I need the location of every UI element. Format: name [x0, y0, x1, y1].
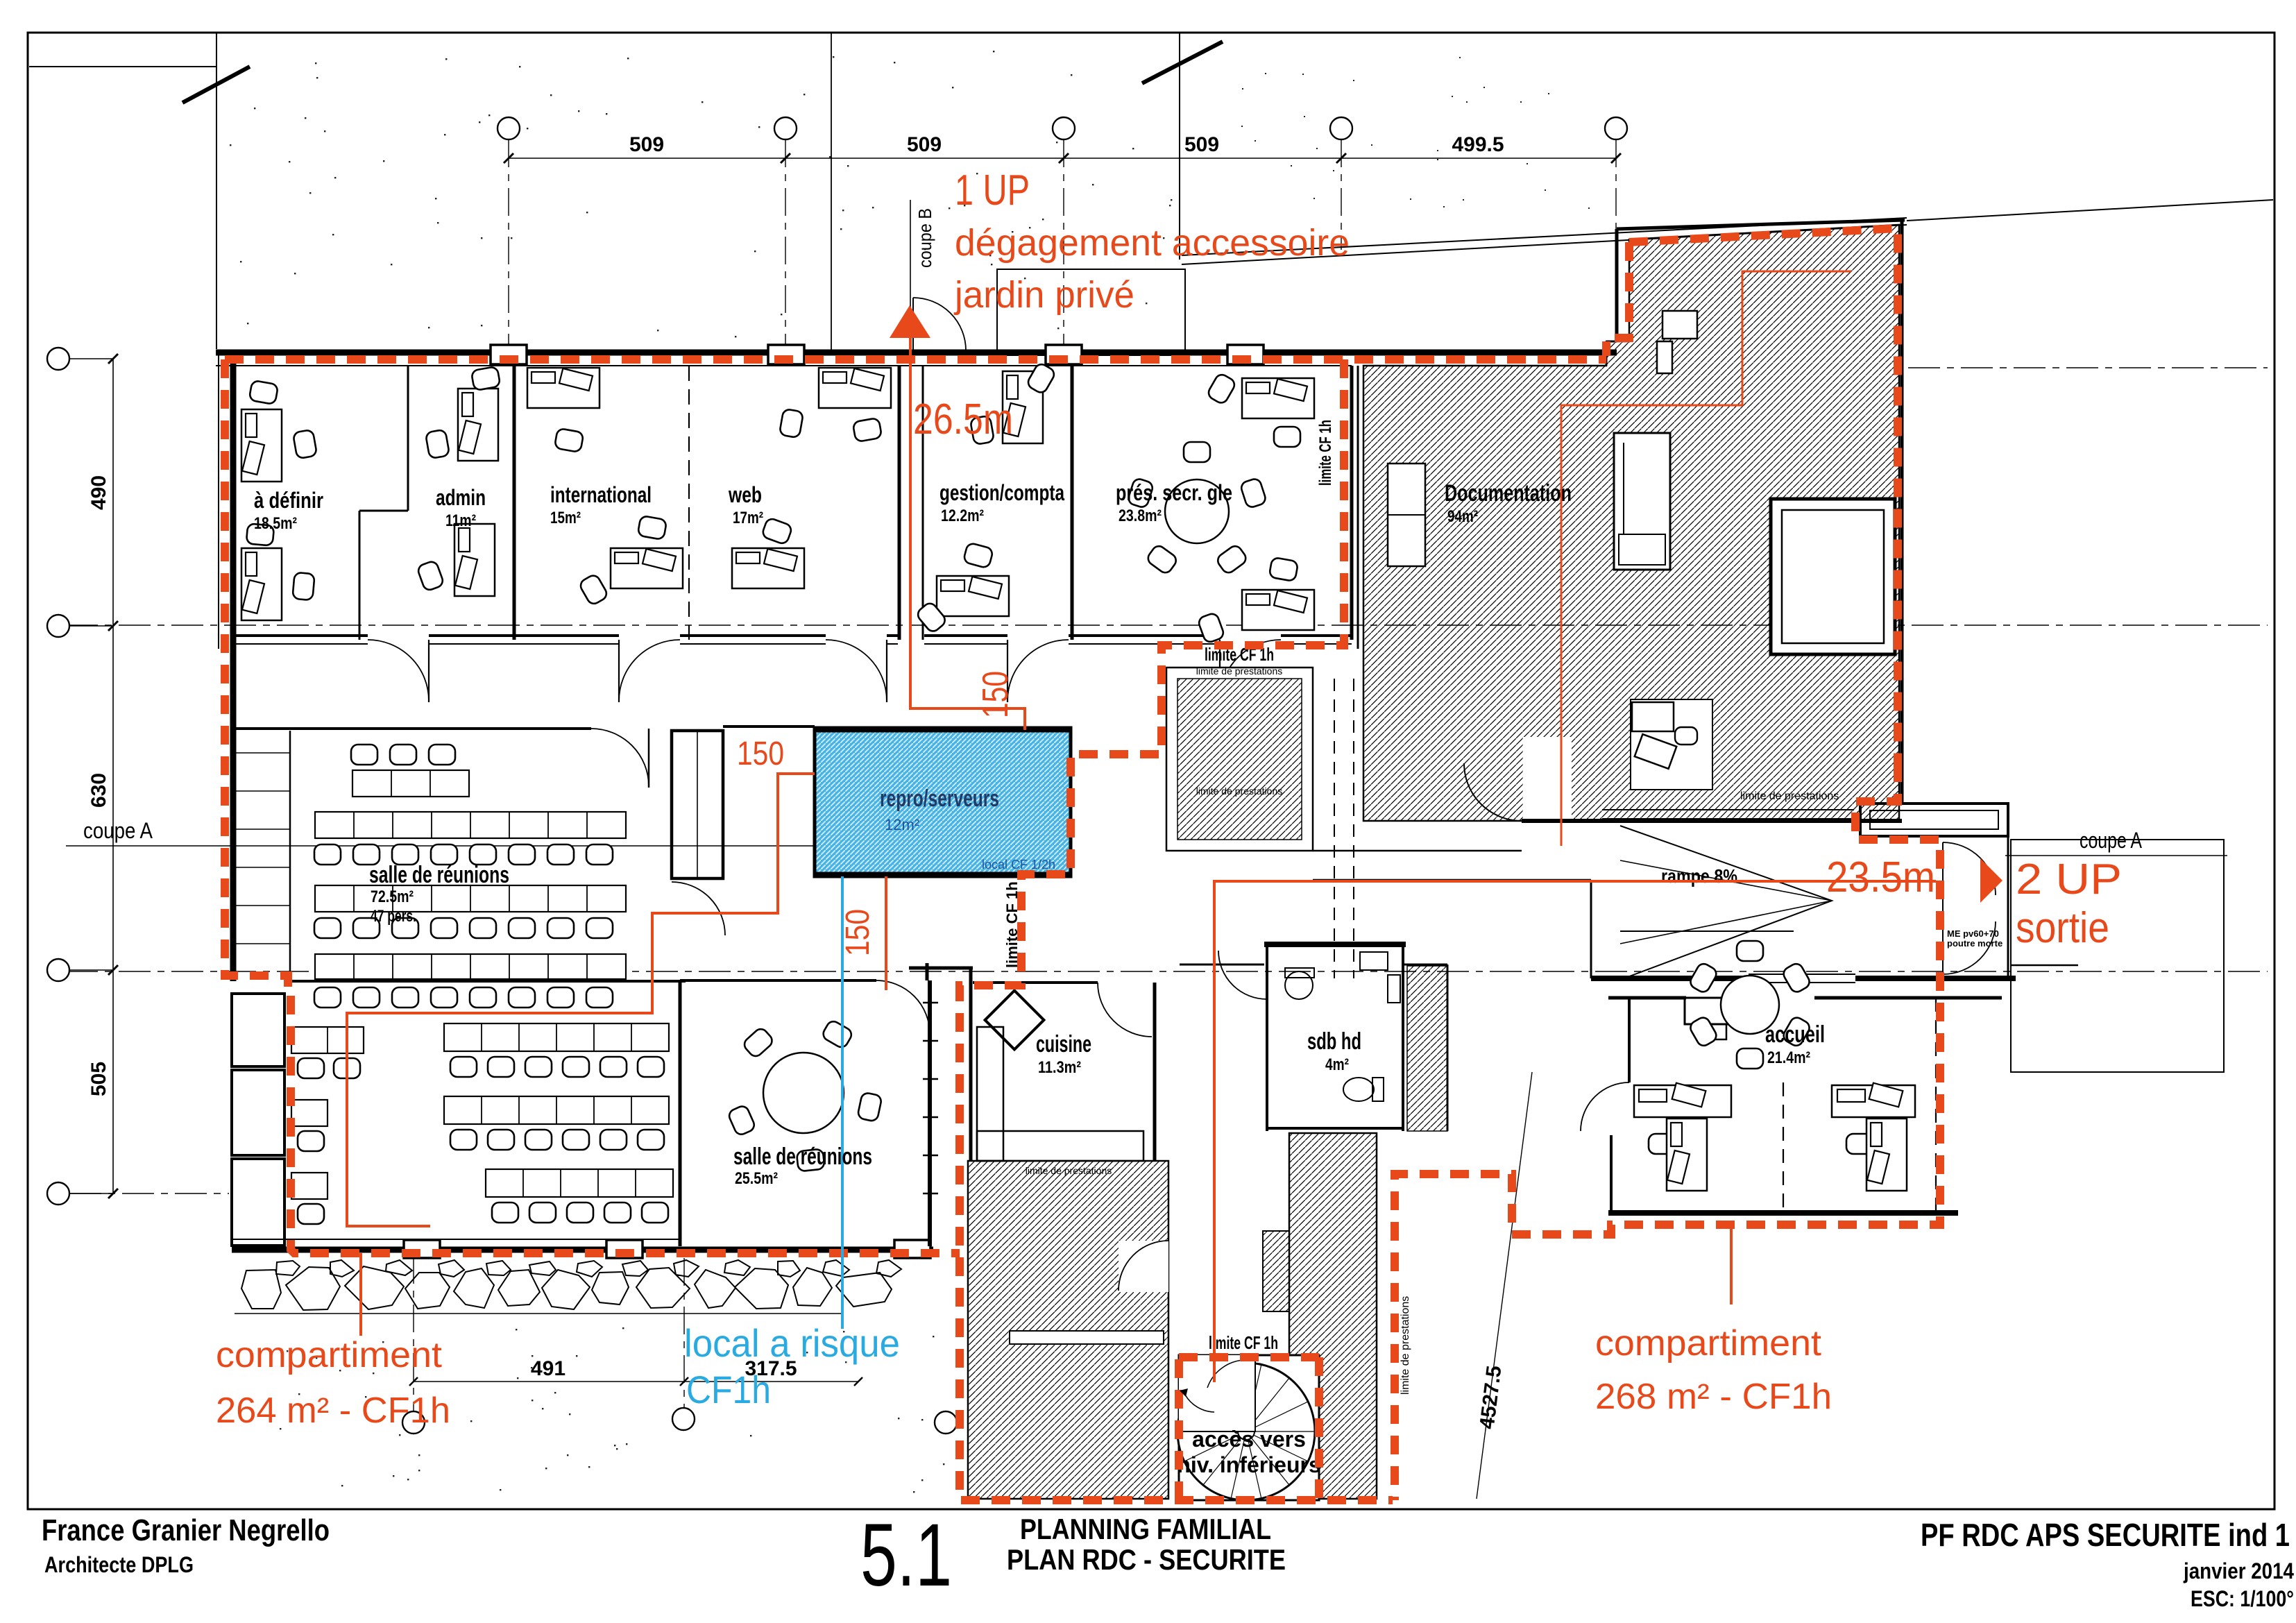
- svg-text:local a risque: local a risque: [684, 1321, 900, 1365]
- svg-text:94m²: 94m²: [1447, 507, 1478, 526]
- svg-text:janvier 2014: janvier 2014: [2183, 1558, 2294, 1583]
- svg-text:coupe B: coupe B: [915, 208, 935, 268]
- svg-text:25.5m²: 25.5m²: [735, 1169, 778, 1188]
- svg-text:sortie: sortie: [2016, 904, 2109, 952]
- svg-text:sdb hd: sdb hd: [1307, 1028, 1361, 1055]
- svg-text:PLANNING FAMILIAL: PLANNING FAMILIAL: [1020, 1513, 1271, 1545]
- svg-text:gestion/compta: gestion/compta: [939, 480, 1064, 505]
- svg-text:limite de prestations: limite de prestations: [1196, 785, 1283, 797]
- svg-text:accès vers: accès vers: [1192, 1427, 1306, 1452]
- svg-text:repro/serveurs: repro/serveurs: [880, 785, 999, 812]
- svg-text:509: 509: [629, 133, 664, 156]
- svg-text:limite CF 1h: limite CF 1h: [1003, 881, 1021, 968]
- svg-text:264 m² - CF1h: 264 m² - CF1h: [216, 1391, 450, 1431]
- svg-text:niv. inférieurs: niv. inférieurs: [1177, 1452, 1320, 1477]
- svg-text:Architecte DPLG: Architecte DPLG: [44, 1552, 194, 1577]
- svg-text:47 pers.: 47 pers.: [371, 907, 416, 926]
- svg-text:à définir: à définir: [254, 488, 323, 513]
- svg-text:11m²: 11m²: [445, 511, 476, 530]
- svg-text:salle de réunions: salle de réunions: [369, 862, 509, 888]
- svg-text:salle de réunions: salle de réunions: [733, 1144, 872, 1170]
- svg-text:limite CF 1h: limite CF 1h: [1316, 420, 1335, 486]
- svg-text:491: 491: [531, 1357, 566, 1380]
- svg-text:local CF 1/2h: local CF 1/2h: [982, 858, 1055, 872]
- svg-text:compartiment: compartiment: [216, 1335, 443, 1375]
- svg-text:international: international: [550, 482, 652, 507]
- svg-text:cuisine: cuisine: [1036, 1031, 1091, 1057]
- svg-text:prés. secr. gle: prés. secr. gle: [1116, 480, 1232, 505]
- svg-text:compartiment: compartiment: [1595, 1323, 1822, 1363]
- svg-text:21.4m²: 21.4m²: [1767, 1048, 1810, 1067]
- svg-text:PF RDC APS SECURITE ind 1: PF RDC APS SECURITE ind 1: [1921, 1517, 2290, 1553]
- svg-text:limite de prestations: limite de prestations: [1740, 790, 1839, 802]
- svg-text:15m²: 15m²: [550, 509, 581, 527]
- svg-text:18.5m²: 18.5m²: [254, 514, 297, 533]
- svg-text:23.5m: 23.5m: [1826, 853, 1935, 901]
- svg-text:France Granier Negrello: France Granier Negrello: [42, 1513, 330, 1547]
- svg-text:ESC: 1/100°: ESC: 1/100°: [2191, 1586, 2294, 1611]
- svg-text:limite de prestations: limite de prestations: [1026, 1165, 1112, 1176]
- svg-text:490: 490: [87, 475, 110, 510]
- svg-text:505: 505: [87, 1062, 110, 1096]
- svg-text:268 m² - CF1h: 268 m² - CF1h: [1595, 1377, 1832, 1417]
- svg-text:509: 509: [1184, 133, 1219, 156]
- svg-text:12m²: 12m²: [885, 816, 919, 833]
- svg-text:accueil: accueil: [1765, 1021, 1825, 1048]
- svg-text:rampe 8%: rampe 8%: [1661, 865, 1737, 887]
- svg-text:2 UP: 2 UP: [2016, 856, 2122, 903]
- svg-text:Documentation: Documentation: [1445, 480, 1572, 507]
- svg-text:630: 630: [87, 773, 110, 808]
- svg-text:1 UP: 1 UP: [955, 167, 1030, 214]
- svg-text:limite CF 1h: limite CF 1h: [1209, 1332, 1278, 1353]
- svg-text:admin: admin: [436, 485, 486, 510]
- svg-text:150: 150: [976, 671, 1016, 718]
- svg-text:web: web: [728, 482, 762, 507]
- svg-text:poutre morte: poutre morte: [1947, 938, 2002, 949]
- svg-text:17m²: 17m²: [733, 509, 763, 527]
- svg-text:12.2m²: 12.2m²: [941, 507, 984, 525]
- svg-text:150: 150: [840, 909, 876, 956]
- svg-text:5.1: 5.1: [860, 1506, 952, 1605]
- svg-text:coupe A: coupe A: [83, 818, 153, 843]
- svg-text:ME pv60+70: ME pv60+70: [1947, 928, 1999, 939]
- svg-text:dégagement accessoire: dégagement accessoire: [955, 222, 1350, 264]
- svg-text:limite de prestations: limite de prestations: [1400, 1296, 1411, 1395]
- svg-text:PLAN RDC - SECURITE: PLAN RDC - SECURITE: [1007, 1543, 1286, 1576]
- svg-text:23.8m²: 23.8m²: [1119, 507, 1162, 525]
- svg-text:26.5m: 26.5m: [913, 396, 1013, 443]
- svg-text:11.3m²: 11.3m²: [1038, 1058, 1081, 1077]
- svg-text:499.5: 499.5: [1452, 133, 1504, 156]
- svg-text:jardin privé: jardin privé: [953, 274, 1134, 316]
- svg-text:4m²: 4m²: [1325, 1055, 1349, 1074]
- svg-text:150: 150: [737, 736, 784, 772]
- svg-text:72.5m²: 72.5m²: [371, 887, 414, 906]
- svg-text:509: 509: [907, 133, 942, 156]
- svg-text:limite de prestations: limite de prestations: [1196, 665, 1283, 677]
- svg-text:CF1h: CF1h: [686, 1368, 771, 1411]
